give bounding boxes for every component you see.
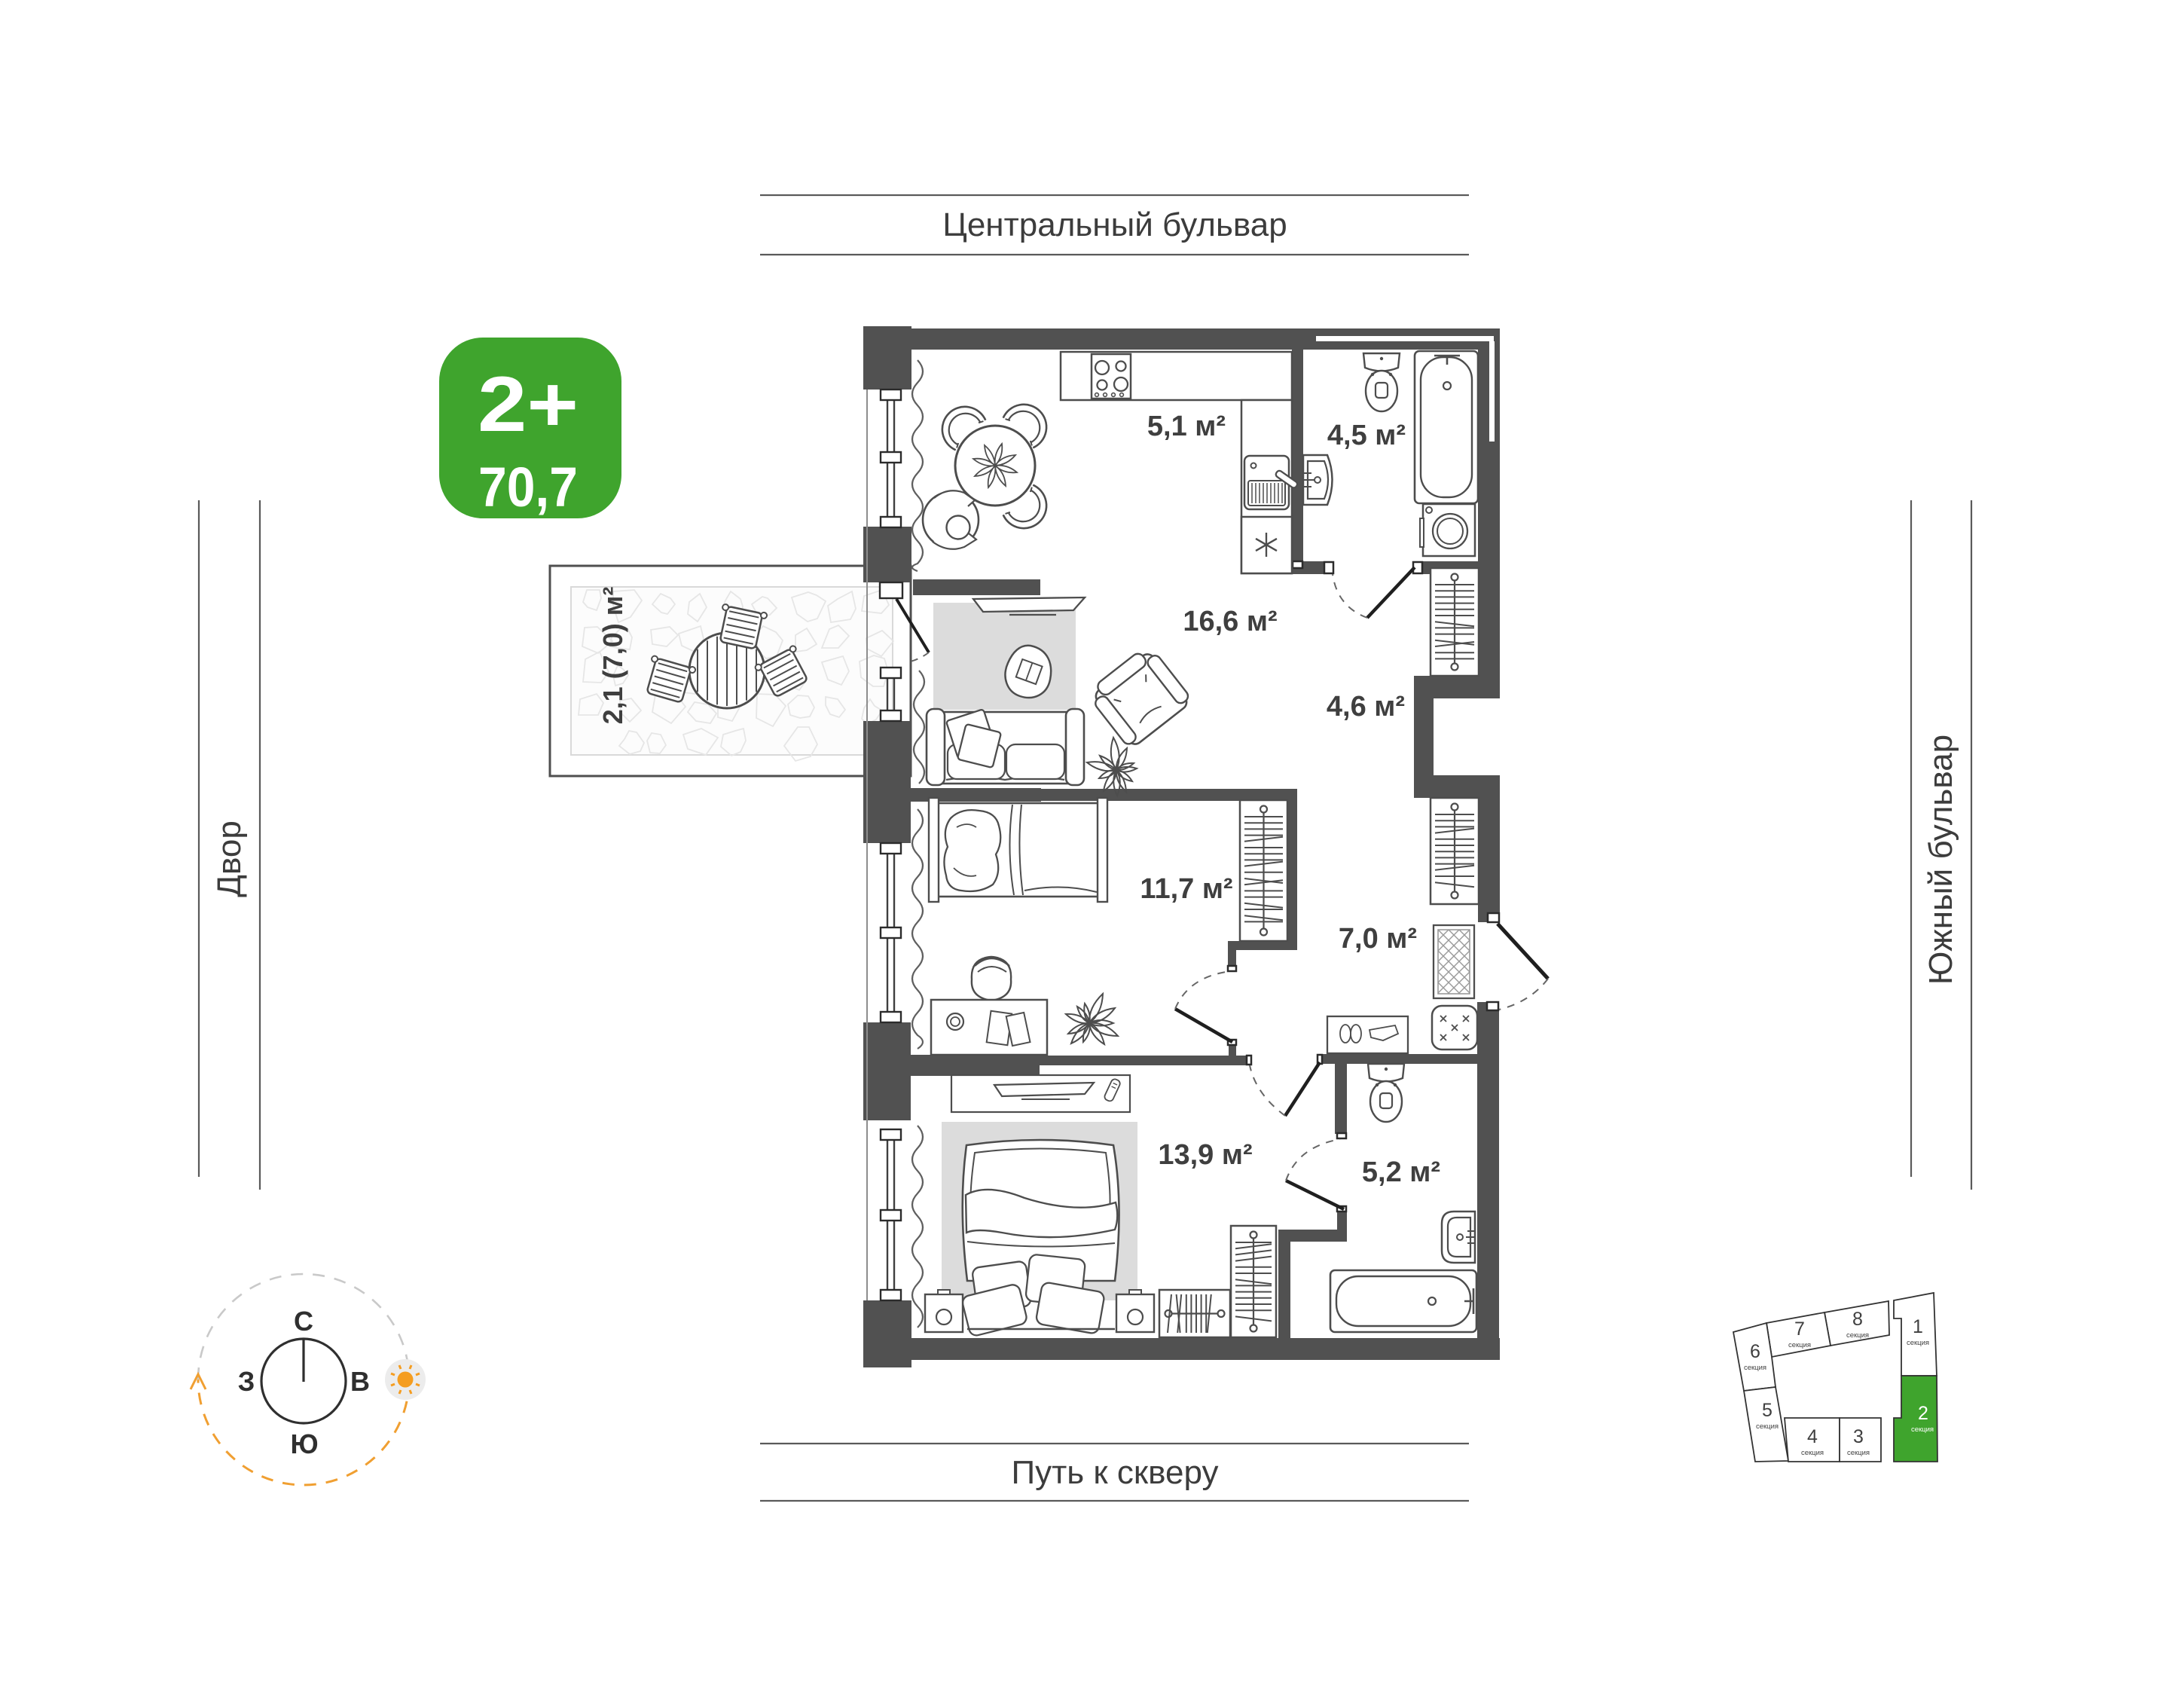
- svg-text:2,1 (7,0) м²: 2,1 (7,0) м²: [597, 587, 628, 725]
- svg-text:2+: 2+: [478, 361, 579, 448]
- svg-text:4,6 м²: 4,6 м²: [1327, 691, 1405, 723]
- svg-text:5: 5: [1762, 1400, 1773, 1421]
- svg-text:секция: секция: [1756, 1422, 1779, 1431]
- svg-text:З: З: [238, 1366, 255, 1397]
- svg-text:Ю: Ю: [290, 1428, 318, 1459]
- svg-text:13,9 м²: 13,9 м²: [1158, 1139, 1252, 1171]
- svg-text:6: 6: [1750, 1341, 1760, 1362]
- svg-text:4,5 м²: 4,5 м²: [1327, 420, 1406, 451]
- svg-text:11,7 м²: 11,7 м²: [1140, 873, 1232, 905]
- svg-text:Двор: Двор: [211, 820, 248, 897]
- svg-text:2: 2: [1918, 1403, 1928, 1424]
- svg-text:секция: секция: [1744, 1364, 1766, 1372]
- svg-text:секция: секция: [1846, 1331, 1869, 1340]
- svg-text:Путь к скверу: Путь к скверу: [1012, 1454, 1219, 1491]
- svg-text:8: 8: [1852, 1309, 1863, 1330]
- svg-text:Центральный бульвар: Центральный бульвар: [942, 206, 1287, 243]
- svg-text:Южный бульвар: Южный бульвар: [1922, 735, 1959, 985]
- svg-text:секция: секция: [1907, 1339, 1929, 1347]
- svg-text:7,0 м²: 7,0 м²: [1339, 923, 1417, 955]
- svg-text:секция: секция: [1788, 1341, 1811, 1349]
- svg-text:70,7: 70,7: [478, 456, 578, 518]
- svg-text:16,6 м²: 16,6 м²: [1183, 606, 1277, 637]
- svg-text:В: В: [350, 1366, 370, 1397]
- svg-text:4: 4: [1807, 1426, 1818, 1447]
- svg-text:секция: секция: [1847, 1449, 1870, 1457]
- svg-text:5,1 м²: 5,1 м²: [1147, 411, 1226, 442]
- svg-text:С: С: [294, 1306, 313, 1337]
- svg-text:1: 1: [1913, 1316, 1923, 1337]
- svg-text:5,2 м²: 5,2 м²: [1362, 1156, 1440, 1188]
- svg-text:3: 3: [1853, 1426, 1864, 1447]
- svg-text:7: 7: [1794, 1318, 1805, 1340]
- svg-text:секция: секция: [1911, 1425, 1934, 1434]
- svg-text:секция: секция: [1801, 1449, 1824, 1457]
